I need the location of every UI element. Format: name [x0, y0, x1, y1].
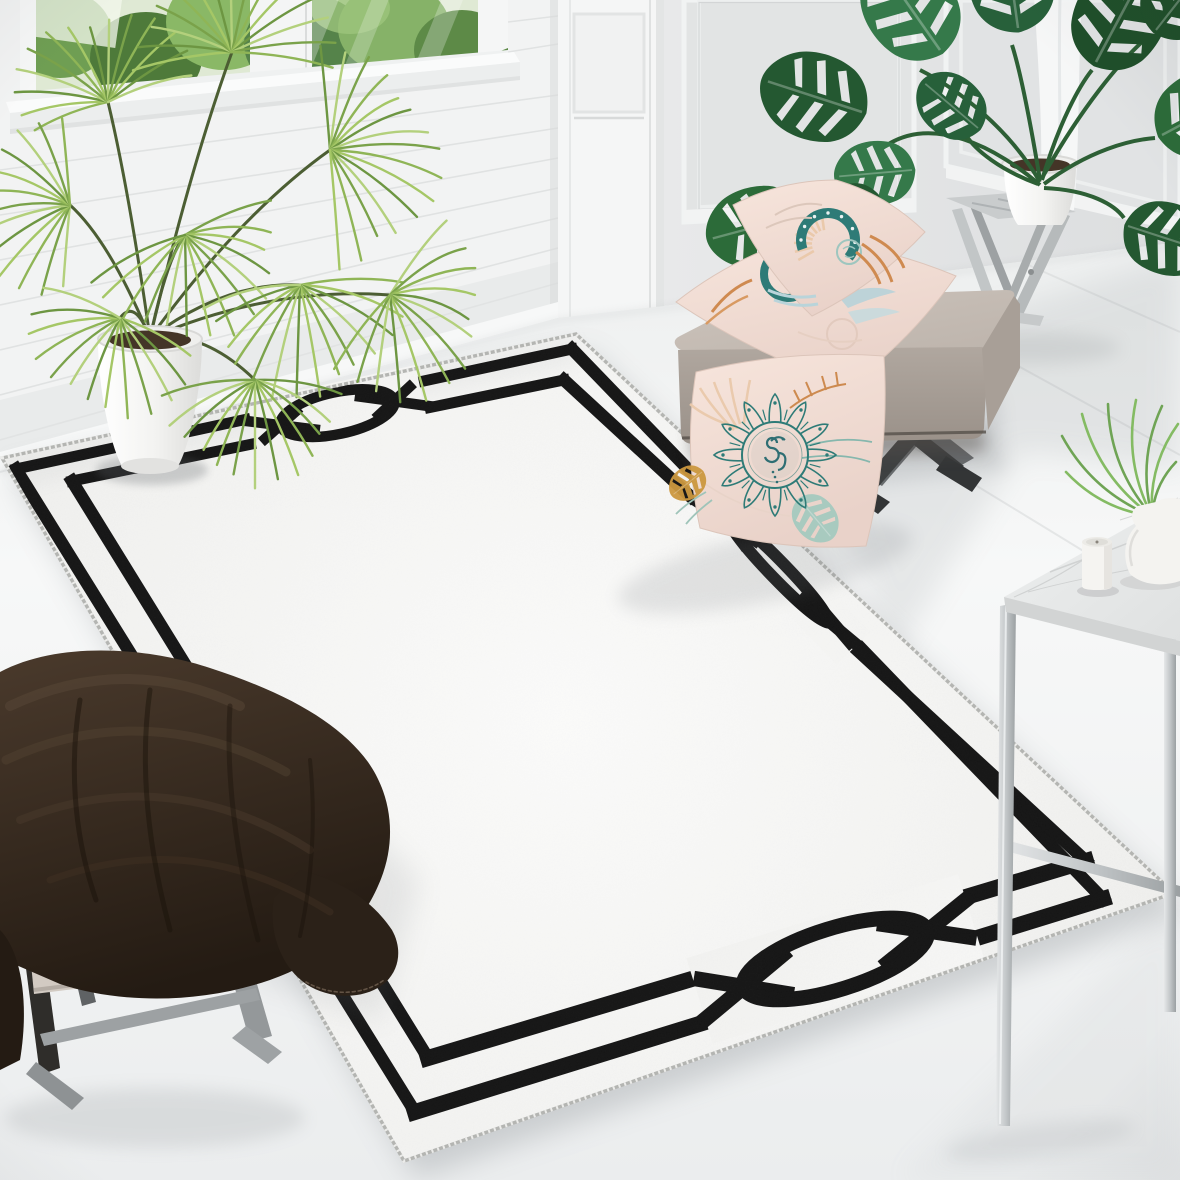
product-photo [0, 0, 1180, 1180]
room-scene [0, 0, 1180, 1180]
vignette [0, 0, 1180, 1180]
